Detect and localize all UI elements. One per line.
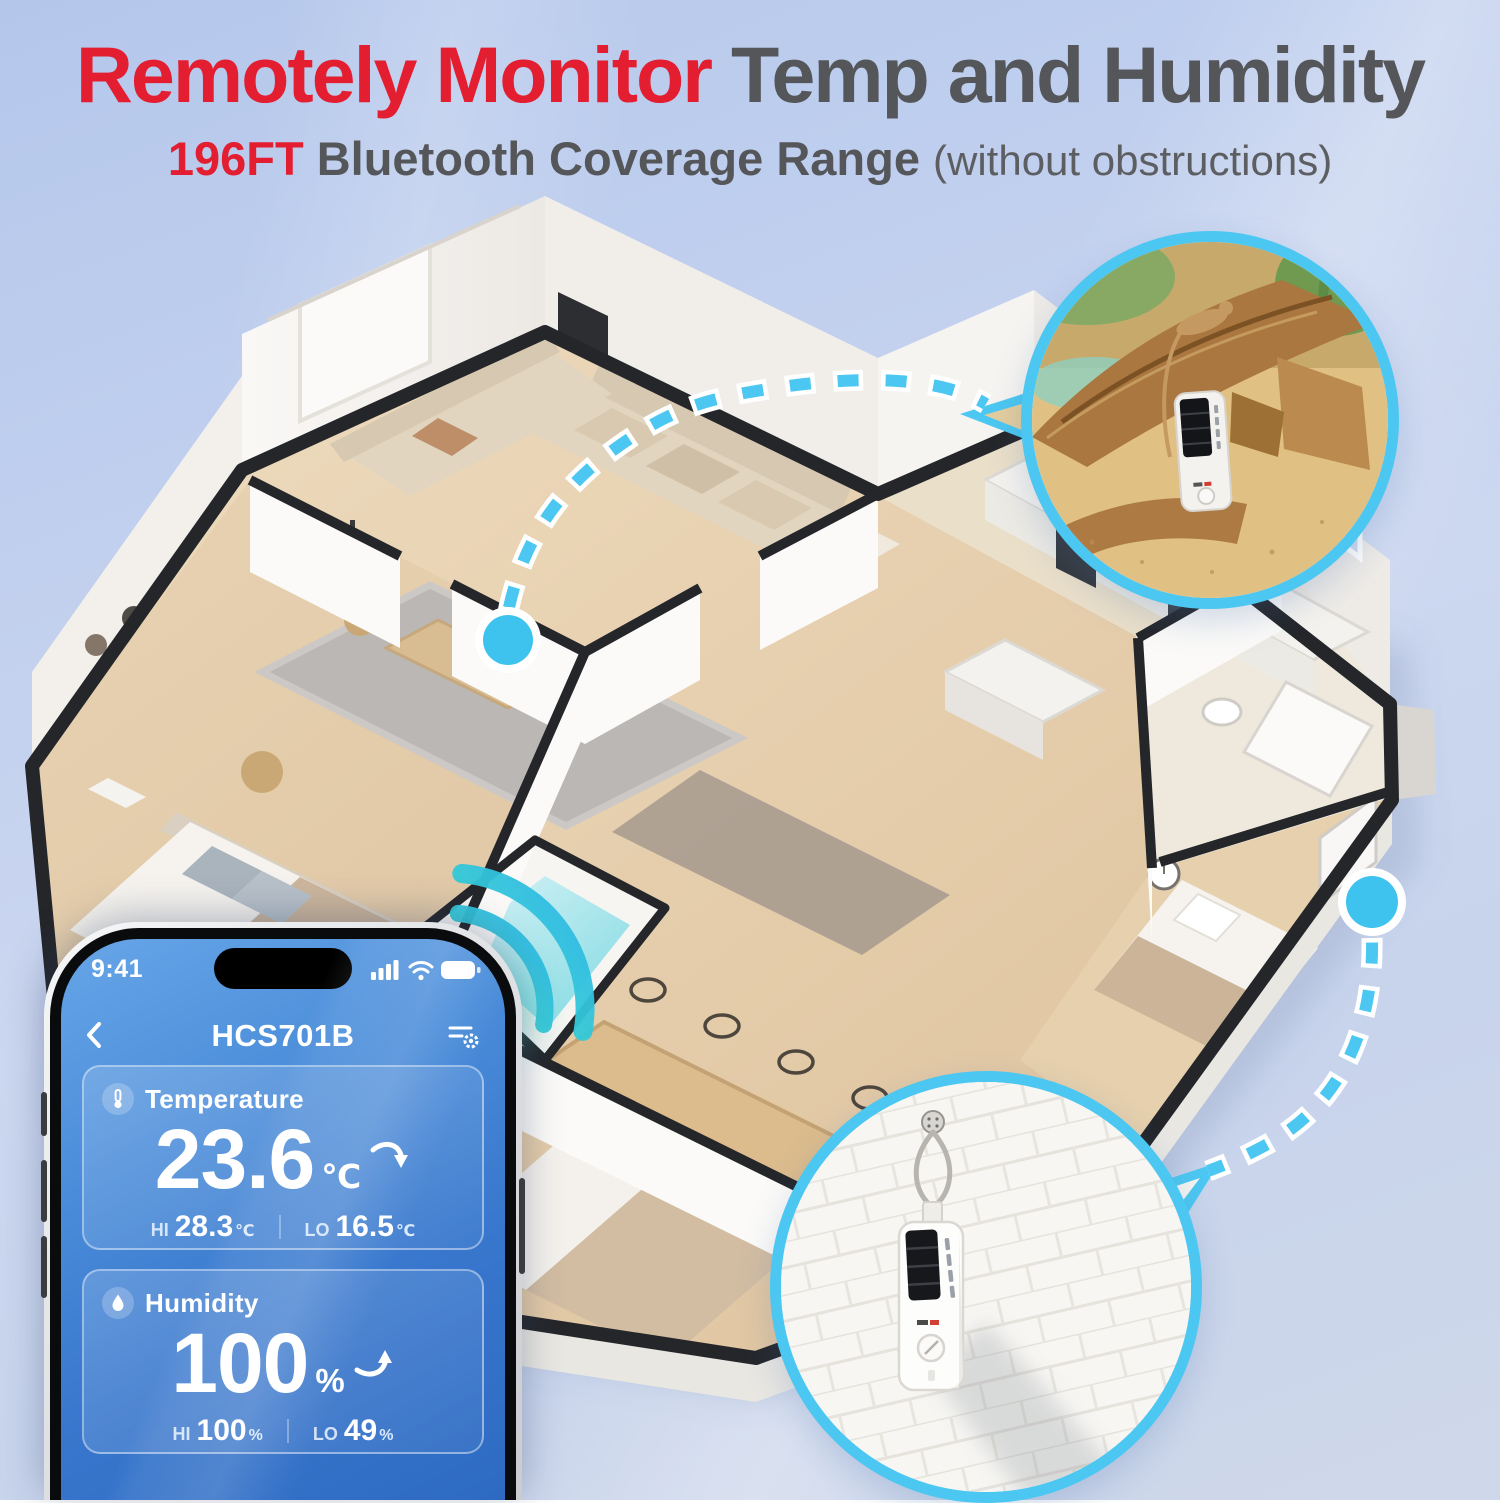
filter-gear-icon: [447, 1021, 481, 1051]
humidity-hi-lo: HI100% LO49%: [84, 1414, 482, 1448]
thermometer-icon: [102, 1083, 134, 1115]
sensor-device: [1174, 391, 1232, 512]
status-time: 9:41: [91, 955, 143, 984]
title-dark: Temp and Humidity: [711, 30, 1424, 119]
device-title: HCS701B: [211, 1018, 354, 1054]
humidity-label: Humidity: [145, 1288, 259, 1319]
dynamic-island: [214, 948, 352, 989]
headline-block: Remotely Monitor Temp and Humidity 196FT…: [0, 34, 1500, 186]
volume-up-button[interactable]: [41, 1160, 47, 1222]
terrarium-callout: [1021, 231, 1399, 609]
subtitle-range: 196FT: [168, 132, 304, 185]
wifi-icon: [408, 959, 434, 981]
battery-full-icon: [441, 959, 481, 981]
power-button[interactable]: [519, 1178, 525, 1274]
curved-arrow-down-icon: [369, 1138, 411, 1181]
subtitle-text: Bluetooth Coverage Range: [304, 132, 933, 185]
title-red: Remotely Monitor: [76, 30, 711, 119]
volume-down-button[interactable]: [41, 1236, 47, 1298]
temperature-hi-lo: HI28.3℃ LO16.5℃: [84, 1210, 482, 1244]
humidity-card: Humidity 100 % HI100% LO49%: [82, 1269, 484, 1454]
wall-device-photo: [781, 1082, 1191, 1492]
brand-logo: [917, 1320, 928, 1325]
toilet: [1203, 699, 1241, 725]
terrarium-photo: [1032, 242, 1388, 598]
phone-screen: 9:41: [61, 939, 505, 1500]
page-title: Remotely Monitor Temp and Humidity: [0, 34, 1500, 117]
jute-pouf: [241, 751, 283, 793]
page-subtitle: 196FT Bluetooth Coverage Range (without …: [0, 131, 1500, 186]
chevron-left-icon: [83, 1019, 105, 1051]
mute-switch[interactable]: [41, 1092, 47, 1136]
smartphone: 9:41: [44, 922, 522, 1500]
humidity-value: 100: [171, 1321, 308, 1405]
back-button[interactable]: [83, 1019, 105, 1056]
cellular-bars-icon: [371, 959, 401, 981]
subtitle-note: (without obstructions): [933, 137, 1332, 184]
temperature-label: Temperature: [145, 1084, 304, 1115]
brand-logo: [1193, 482, 1202, 487]
droplet-icon: [102, 1287, 134, 1319]
temperature-card: Temperature 23.6 ℃ HI28.3℃ LO16.5℃: [82, 1065, 484, 1250]
settings-button[interactable]: [447, 1021, 481, 1056]
wall-mount-callout: [770, 1071, 1202, 1503]
curved-arrow-up-icon: [353, 1342, 395, 1385]
temperature-value: 23.6: [155, 1117, 315, 1201]
sensor-device: [899, 1222, 963, 1390]
app-nav-bar: HCS701B: [61, 1015, 505, 1057]
